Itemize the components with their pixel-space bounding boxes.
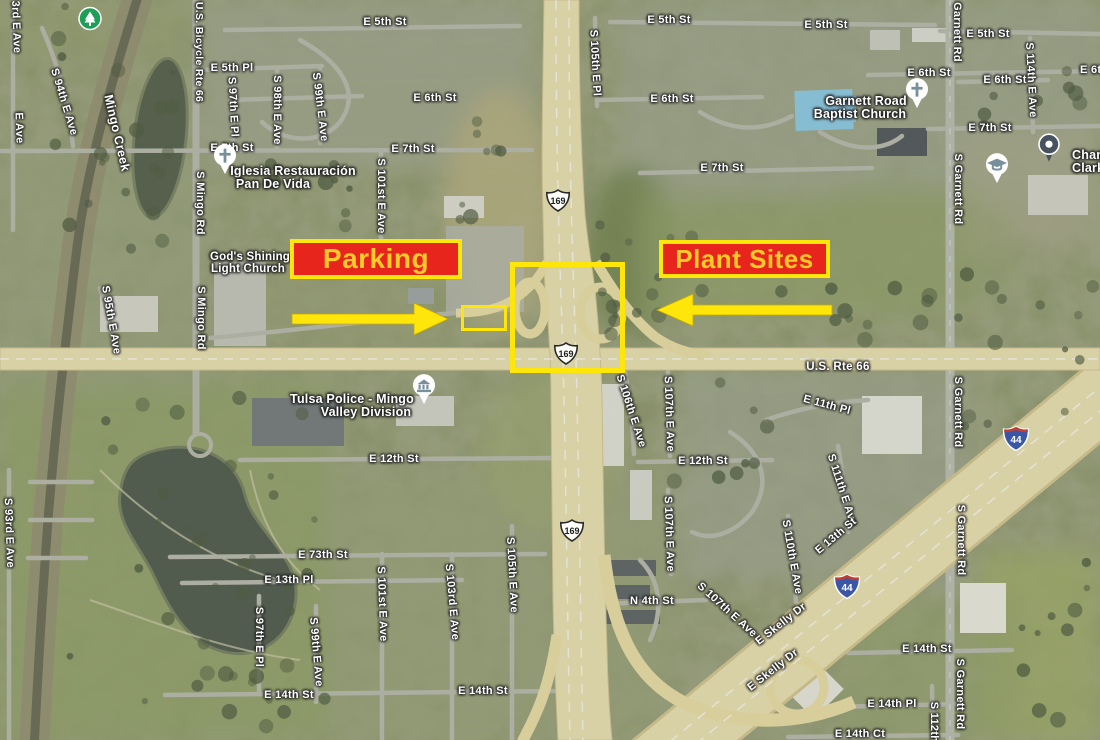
satellite-map: 3rd E AveE AveS 94th E AveMingo CreekU.S… xyxy=(0,0,1100,740)
parking-label: Parking xyxy=(323,245,429,273)
parking-label-box: Parking xyxy=(290,239,462,279)
plant-sites-label: Plant Sites xyxy=(675,246,813,272)
plant-sites-arrow xyxy=(654,292,834,328)
parking-lot-highlight-rect xyxy=(461,305,507,331)
interchange-highlight-rect xyxy=(510,262,625,373)
plant-sites-label-box: Plant Sites xyxy=(659,240,830,278)
parking-arrow xyxy=(290,301,450,337)
